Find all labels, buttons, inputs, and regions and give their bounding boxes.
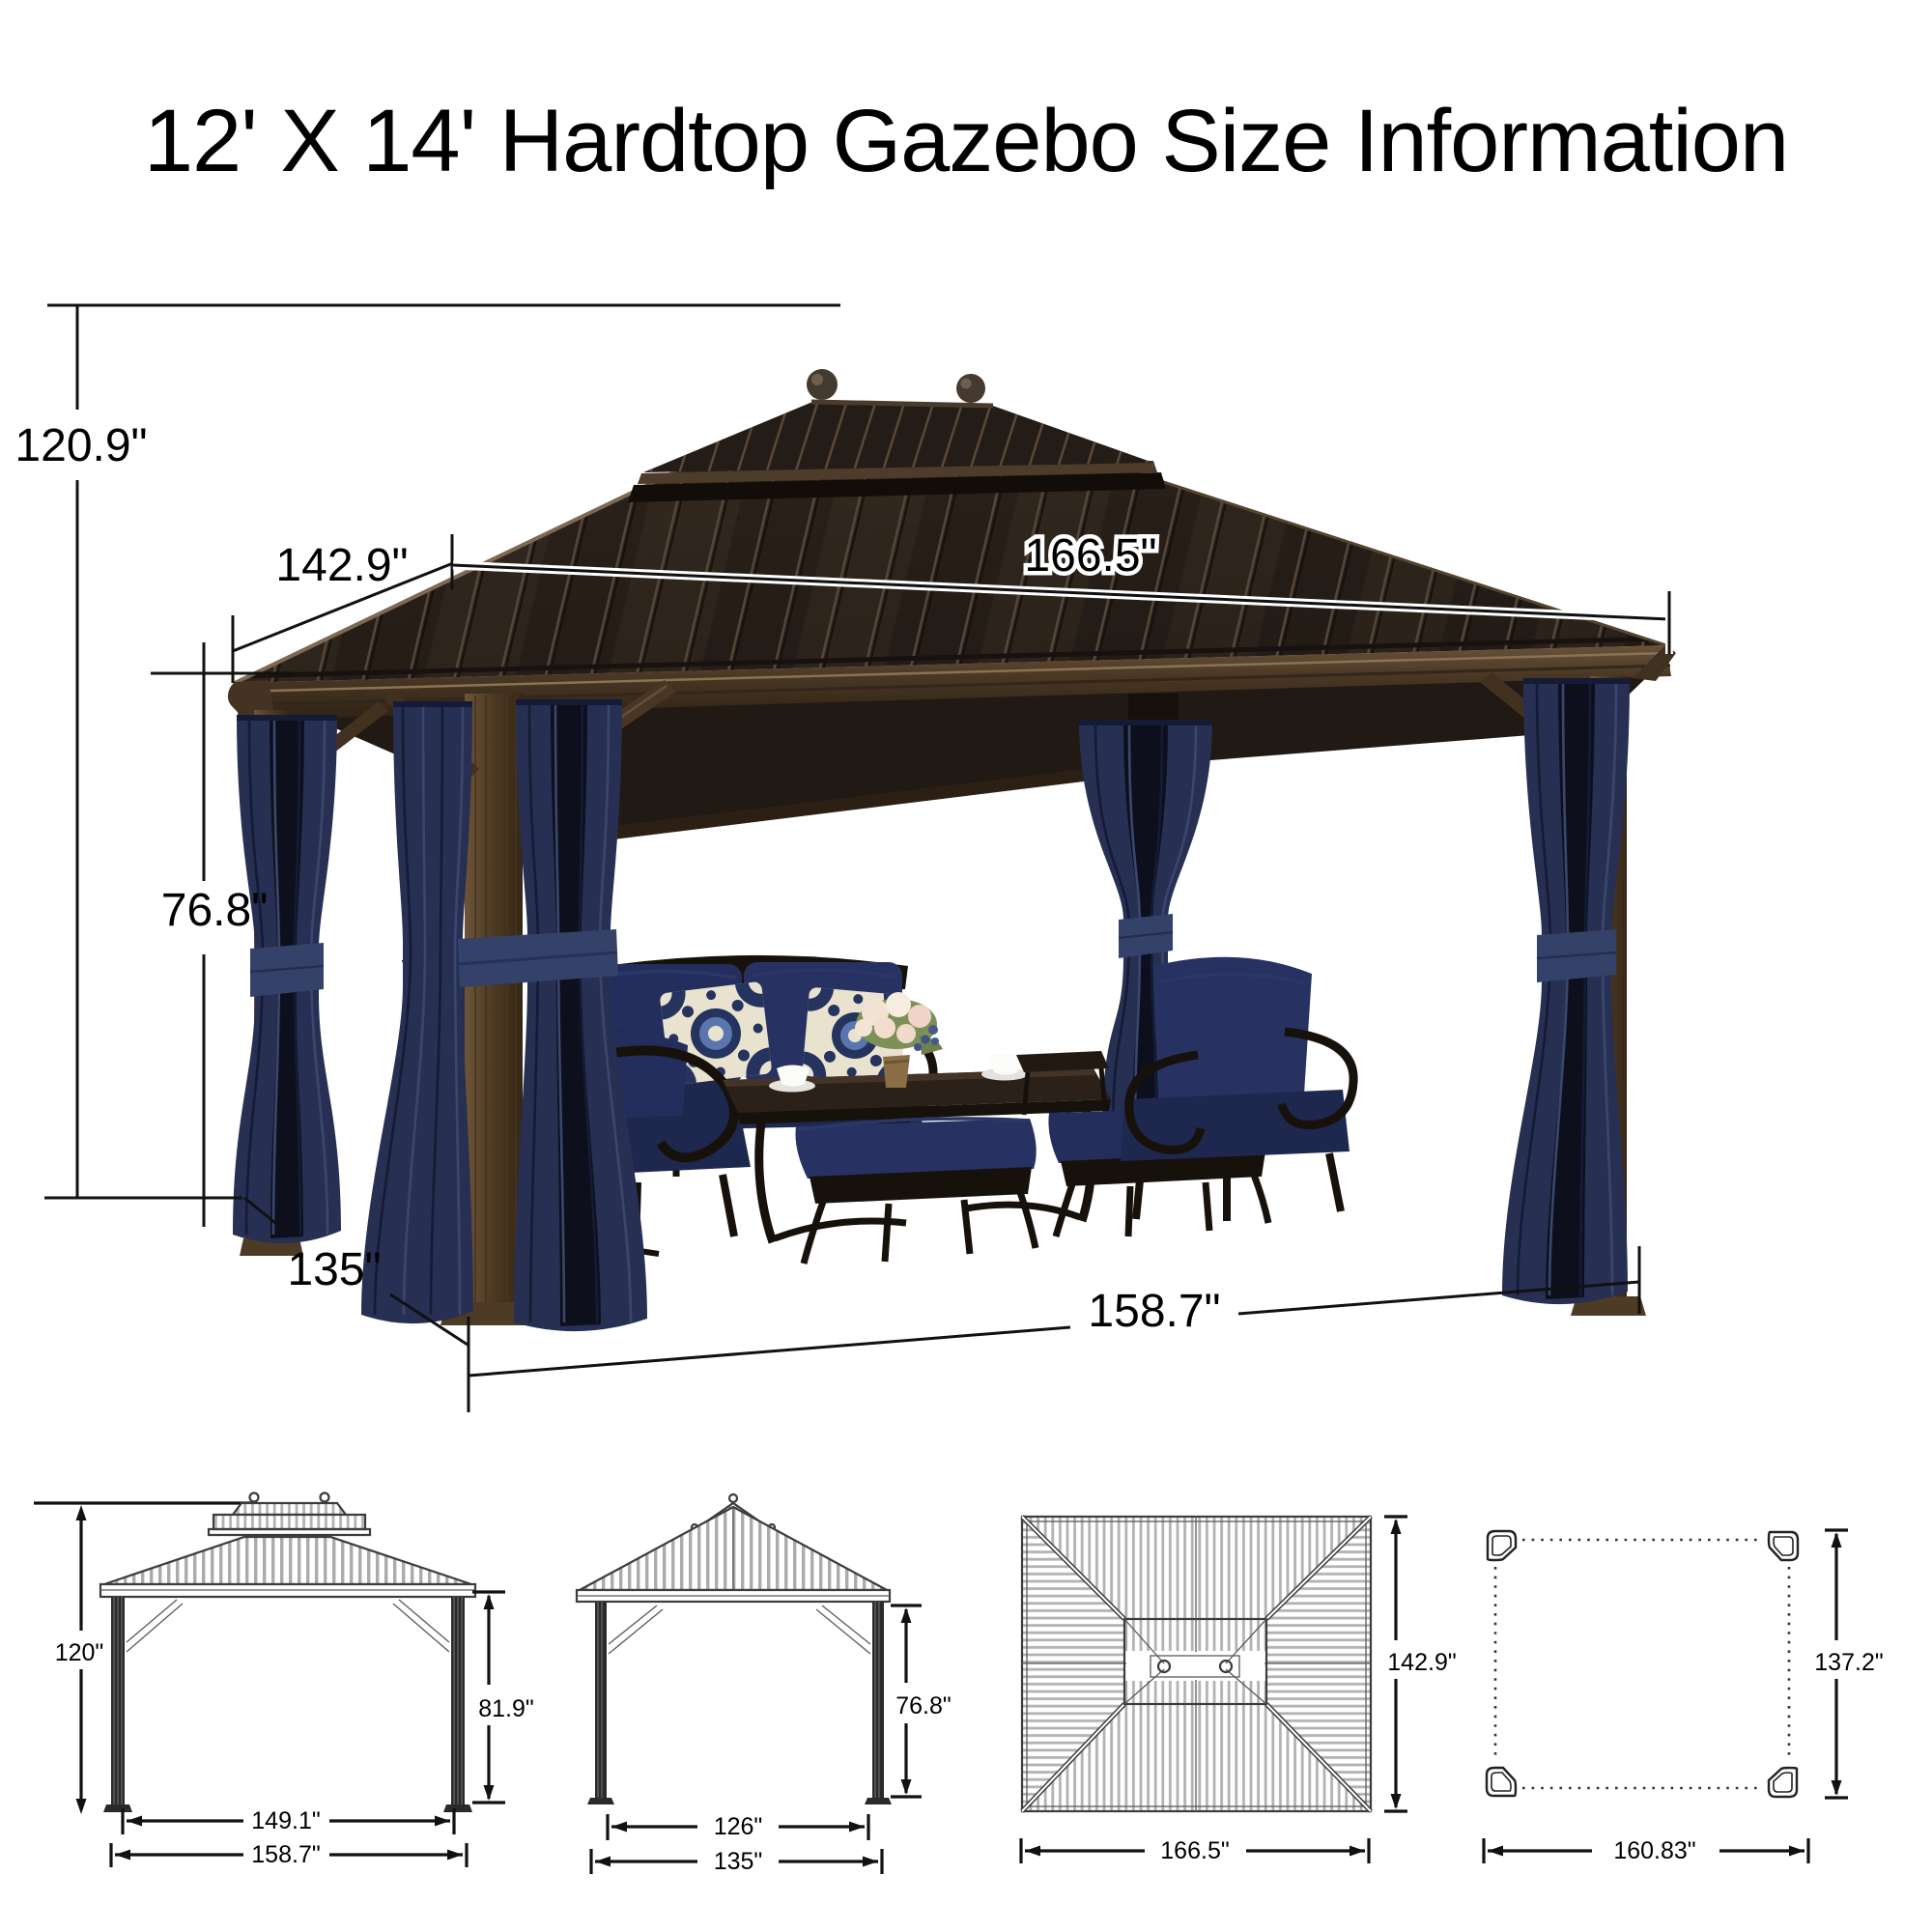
svg-text:158.7": 158.7" — [251, 1841, 320, 1868]
svg-text:76.8": 76.8" — [161, 885, 268, 936]
svg-text:142.9": 142.9" — [275, 540, 408, 591]
svg-text:142.9": 142.9" — [1387, 1649, 1456, 1676]
svg-text:126": 126" — [714, 1813, 763, 1840]
svg-text:135": 135" — [287, 1244, 381, 1295]
svg-text:120.9": 120.9" — [14, 420, 147, 471]
svg-text:81.9": 81.9" — [478, 1695, 534, 1722]
svg-text:160.83": 160.83" — [1613, 1837, 1695, 1864]
svg-text:120": 120" — [55, 1639, 104, 1666]
svg-text:166.5": 166.5" — [1024, 530, 1156, 582]
svg-text:137.2": 137.2" — [1814, 1649, 1883, 1676]
svg-text:135": 135" — [714, 1848, 763, 1875]
svg-text:12' X 14' Hardtop Gazebo Size: 12' X 14' Hardtop Gazebo Size Informatio… — [144, 92, 1788, 190]
svg-text:149.1": 149.1" — [251, 1807, 320, 1834]
svg-text:158.7": 158.7" — [1088, 1286, 1220, 1337]
svg-text:76.8": 76.8" — [895, 1692, 952, 1719]
svg-text:166.5": 166.5" — [1160, 1837, 1229, 1864]
